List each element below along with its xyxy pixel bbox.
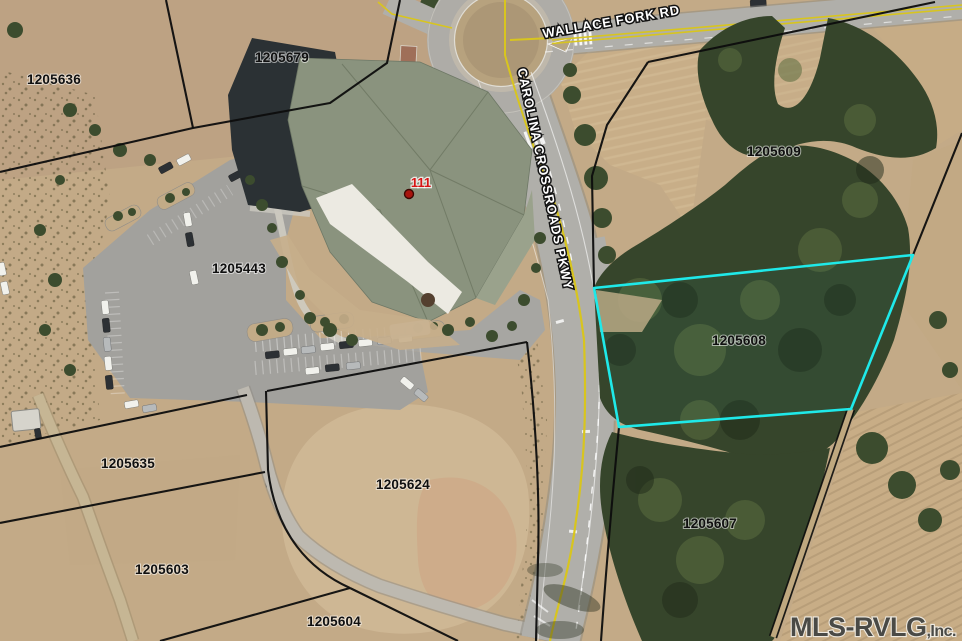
- parcel-label-1205608: 1205608: [712, 333, 766, 348]
- watermark-suffix: ,Inc.: [926, 623, 956, 640]
- parcel-label-1205603: 1205603: [135, 562, 189, 577]
- parcel-label-1205604: 1205604: [307, 614, 361, 629]
- parcel-label-1205635: 1205635: [101, 456, 155, 471]
- parcel-label-1205607: 1205607: [683, 516, 737, 531]
- parcel-label-1205636: 1205636: [27, 72, 81, 87]
- watermark-main: MLS-RVLG: [790, 612, 927, 641]
- parcel-label-1205679: 1205679: [255, 50, 309, 65]
- property-marker-dot: [405, 190, 414, 199]
- parcel-label-1205624: 1205624: [376, 477, 430, 492]
- property-marker-label: 111: [411, 175, 431, 190]
- parcel-label-1205443: 1205443: [212, 261, 266, 276]
- map-canvas: 1205636 1205679 1205443 1205609 1205608 …: [0, 0, 962, 641]
- aerial-parcel-map: 1205636 1205679 1205443 1205609 1205608 …: [0, 0, 962, 641]
- parcel-label-1205609: 1205609: [747, 144, 801, 159]
